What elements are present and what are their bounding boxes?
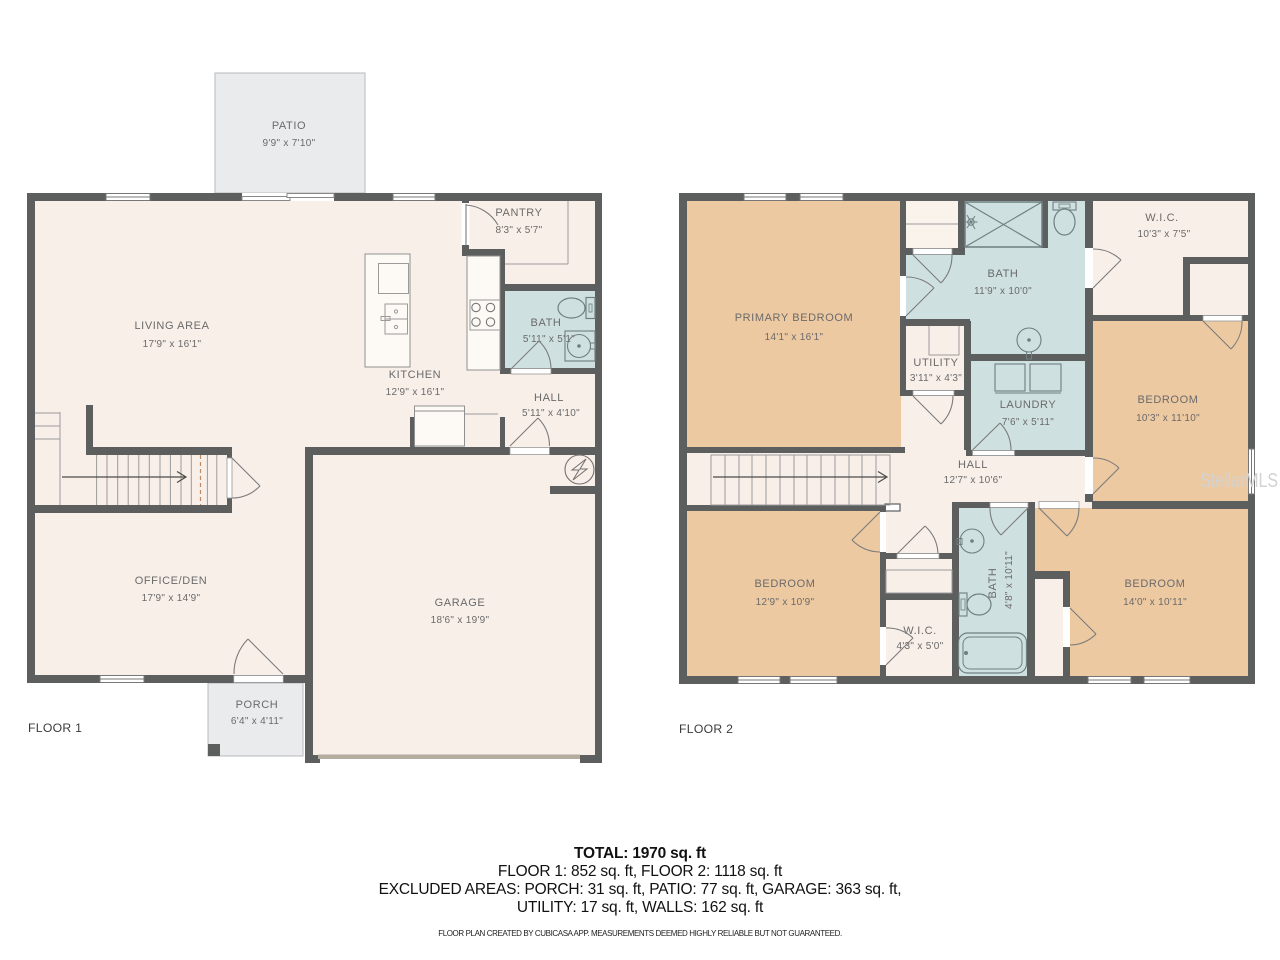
svg-text:PRIMARY BEDROOM: PRIMARY BEDROOM (735, 312, 854, 324)
svg-text:BEDROOM: BEDROOM (754, 578, 815, 590)
svg-text:PANTRY: PANTRY (495, 207, 542, 219)
svg-text:StellarMLS: StellarMLS (1200, 470, 1278, 492)
svg-text:7'6" x 5'11": 7'6" x 5'11" (1002, 417, 1054, 428)
svg-text:FLOOR 1: 852 sq. ft, FLOOR 2:: FLOOR 1: 852 sq. ft, FLOOR 2: 1118 sq. f… (498, 863, 783, 880)
svg-text:W.I.C.: W.I.C. (903, 625, 937, 637)
svg-text:8'3" x 5'7": 8'3" x 5'7" (495, 225, 542, 236)
svg-text:HALL: HALL (958, 459, 988, 471)
svg-text:BEDROOM: BEDROOM (1124, 578, 1185, 590)
svg-text:UTILITY: 17 sq. ft, WALLS: 162: UTILITY: 17 sq. ft, WALLS: 162 sq. ft (517, 899, 764, 916)
svg-text:W.I.C.: W.I.C. (1145, 212, 1179, 224)
svg-text:17'9" x 14'9": 17'9" x 14'9" (142, 593, 201, 604)
svg-text:9'9" x 7'10": 9'9" x 7'10" (263, 138, 316, 149)
svg-text:BATH: BATH (988, 268, 1019, 280)
svg-text:GARAGE: GARAGE (435, 597, 486, 609)
svg-text:BEDROOM: BEDROOM (1137, 394, 1198, 406)
svg-text:11'9" x 10'0": 11'9" x 10'0" (974, 286, 1032, 297)
svg-text:OFFICE/DEN: OFFICE/DEN (135, 575, 208, 587)
svg-text:KITCHEN: KITCHEN (389, 369, 441, 381)
svg-text:LIVING AREA: LIVING AREA (134, 320, 209, 332)
svg-text:FLOOR 2: FLOOR 2 (679, 722, 733, 736)
svg-text:14'0" x 10'11": 14'0" x 10'11" (1123, 597, 1187, 608)
svg-text:17'9" x 16'1": 17'9" x 16'1" (143, 339, 202, 350)
svg-text:12'7" x 10'6": 12'7" x 10'6" (944, 475, 1003, 486)
svg-text:PATIO: PATIO (272, 120, 306, 132)
svg-text:3'11" x 4'3": 3'11" x 4'3" (910, 373, 962, 384)
svg-text:LAUNDRY: LAUNDRY (1000, 399, 1057, 411)
svg-text:4'8" x 10'11": 4'8" x 10'11" (1004, 551, 1015, 609)
svg-text:4'3" x 5'0": 4'3" x 5'0" (896, 641, 943, 652)
svg-text:PORCH: PORCH (236, 699, 279, 711)
svg-text:UTILITY: UTILITY (913, 357, 958, 369)
svg-text:12'9" x 16'1": 12'9" x 16'1" (386, 387, 445, 398)
svg-text:EXCLUDED AREAS: PORCH: 31 sq.: EXCLUDED AREAS: PORCH: 31 sq. ft, PATIO:… (379, 881, 902, 898)
svg-text:FLOOR 1: FLOOR 1 (28, 721, 82, 735)
svg-text:HALL: HALL (534, 392, 564, 404)
svg-text:18'6" x 19'9": 18'6" x 19'9" (431, 615, 490, 626)
svg-text:10'3" x 11'10": 10'3" x 11'10" (1136, 413, 1200, 424)
svg-text:10'3" x 7'5": 10'3" x 7'5" (1138, 229, 1191, 240)
svg-text:TOTAL: 1970 sq. ft: TOTAL: 1970 sq. ft (574, 845, 706, 862)
svg-text:12'9" x 10'9": 12'9" x 10'9" (756, 597, 815, 608)
svg-text:14'1" x 16'1": 14'1" x 16'1" (765, 332, 824, 343)
svg-text:5'11" x 4'10": 5'11" x 4'10" (522, 408, 580, 419)
svg-text:BATH: BATH (987, 568, 999, 599)
svg-text:FLOOR PLAN CREATED BY CUBICASA: FLOOR PLAN CREATED BY CUBICASA APP. MEAS… (438, 929, 842, 938)
svg-text:BATH: BATH (531, 317, 562, 329)
svg-text:6'4" x 4'11": 6'4" x 4'11" (231, 716, 283, 727)
